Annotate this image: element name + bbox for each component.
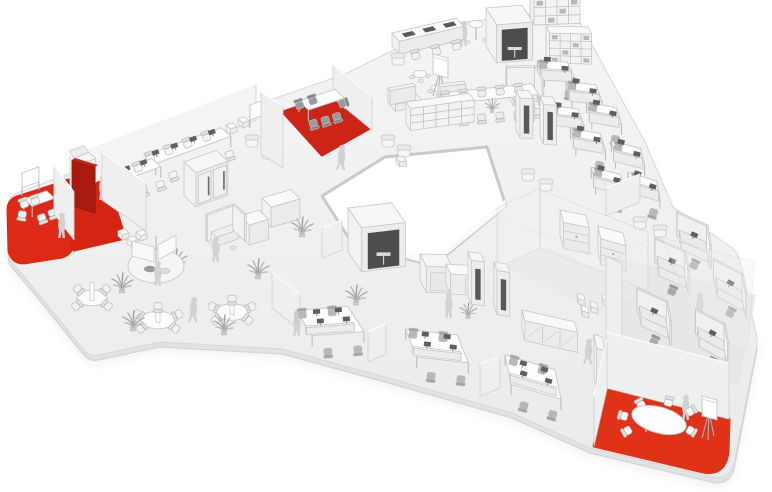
- meeting-cube: [486, 5, 533, 63]
- armchair: [397, 145, 411, 157]
- armchair: [653, 225, 667, 237]
- office-floorplan: [0, 0, 772, 492]
- phone-booth: [540, 96, 557, 145]
- library-shelf: [546, 26, 592, 64]
- meeting-room-wall-left: [261, 92, 283, 168]
- pouf: [581, 305, 589, 318]
- armchair: [245, 135, 259, 147]
- armchair: [539, 179, 553, 191]
- meeting-cube: [348, 203, 405, 272]
- armchair: [521, 169, 535, 181]
- phone-booth: [516, 90, 533, 139]
- phone-booth: [468, 252, 484, 306]
- floorplan-illustration: [0, 0, 772, 492]
- library-shelf: [530, 0, 580, 25]
- armchair: [381, 135, 395, 147]
- red-storage-wall: [72, 158, 98, 213]
- armchair: [391, 53, 405, 65]
